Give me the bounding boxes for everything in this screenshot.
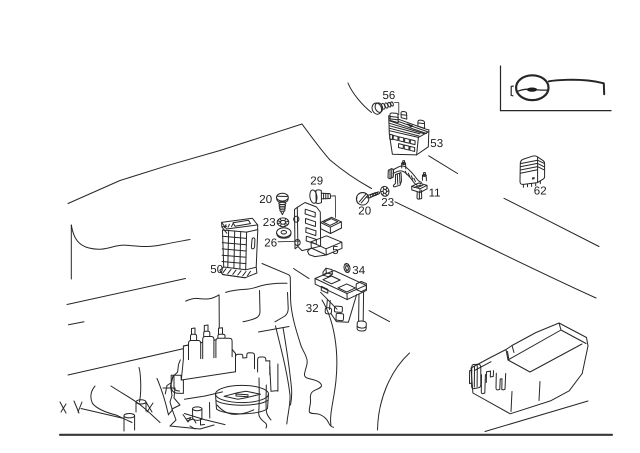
svg-text:23: 23 <box>263 217 276 229</box>
svg-text:29: 29 <box>310 176 323 188</box>
svg-text:11: 11 <box>429 188 441 200</box>
svg-text:53: 53 <box>430 138 443 150</box>
svg-text:26: 26 <box>264 237 277 249</box>
svg-text:62: 62 <box>534 186 547 198</box>
svg-text:20: 20 <box>259 194 272 206</box>
svg-text:34: 34 <box>352 265 365 277</box>
svg-text:50: 50 <box>210 264 223 276</box>
svg-text:5: 5 <box>332 245 338 257</box>
svg-text:23: 23 <box>381 197 394 209</box>
svg-text:32: 32 <box>306 303 319 315</box>
svg-text:20: 20 <box>358 206 371 218</box>
svg-text:56: 56 <box>383 90 396 102</box>
